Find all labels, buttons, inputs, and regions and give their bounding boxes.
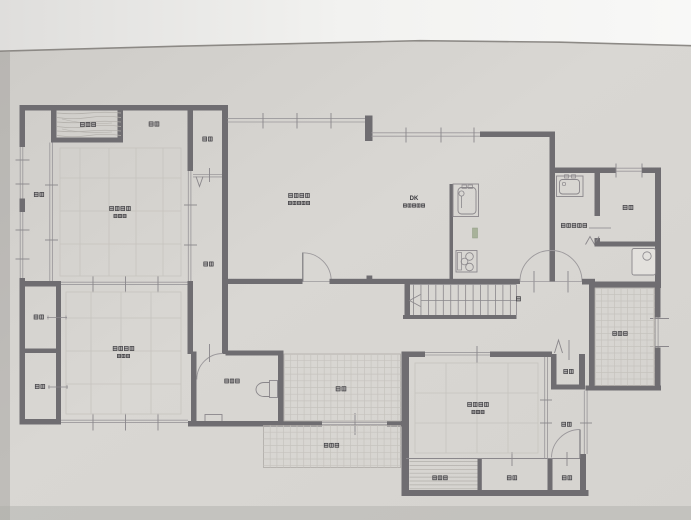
svg-text:DK: DK <box>410 196 419 202</box>
